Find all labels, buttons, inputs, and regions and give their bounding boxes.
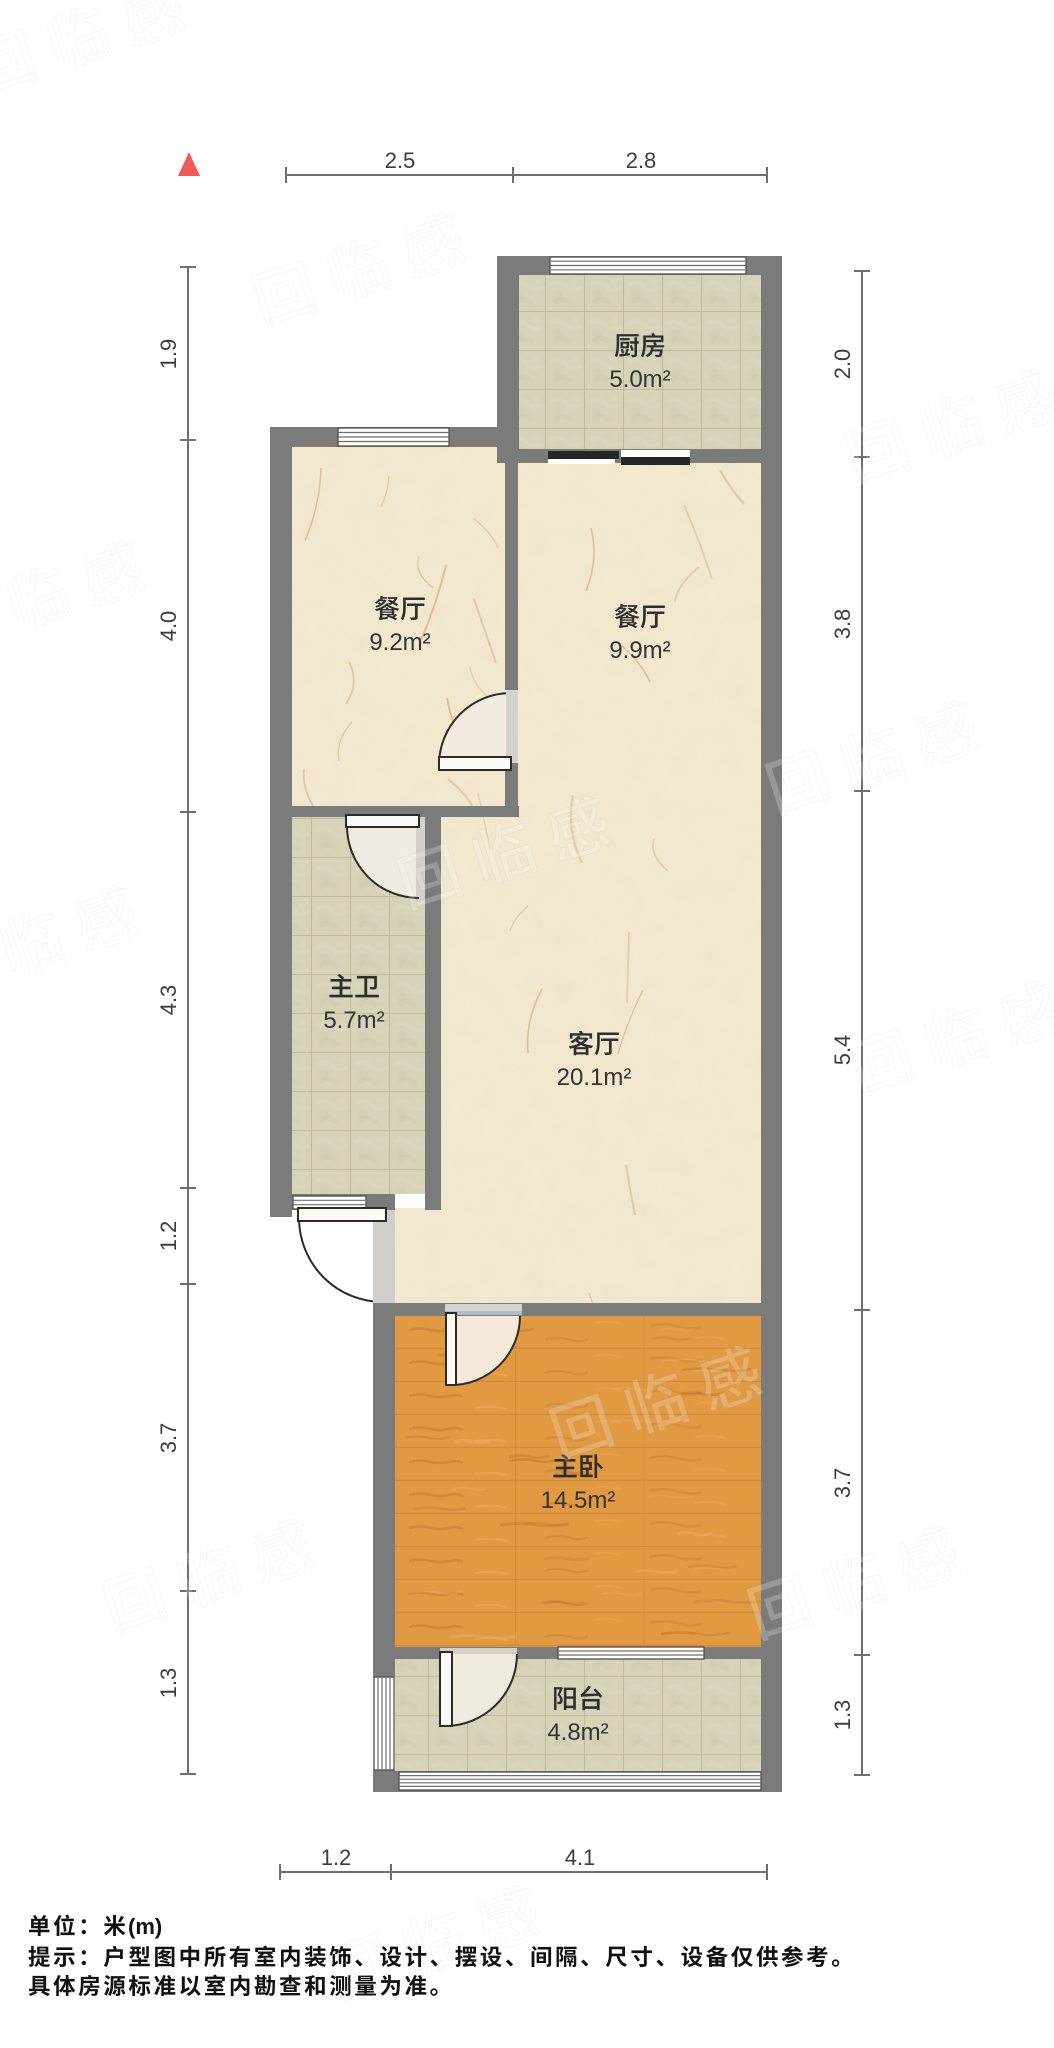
svg-text:5.0m²: 5.0m² — [609, 366, 670, 393]
svg-text:20.1m²: 20.1m² — [557, 1064, 632, 1091]
svg-text:4.8m²: 4.8m² — [547, 1719, 608, 1746]
svg-text:4.3: 4.3 — [156, 985, 181, 1016]
svg-text:5.7m²: 5.7m² — [323, 1007, 384, 1034]
svg-text:(m): (m) — [128, 1914, 162, 1939]
svg-text:3.7: 3.7 — [830, 1468, 855, 1499]
svg-text:4.0: 4.0 — [156, 611, 181, 642]
svg-text:9.9m²: 9.9m² — [609, 637, 670, 664]
svg-text:2.0: 2.0 — [830, 349, 855, 380]
svg-text:1.3: 1.3 — [156, 1668, 181, 1699]
svg-text:9.2m²: 9.2m² — [369, 629, 430, 656]
svg-text:3.7: 3.7 — [156, 1423, 181, 1454]
svg-text:1.2: 1.2 — [321, 1845, 352, 1870]
svg-text:2.5: 2.5 — [385, 148, 416, 173]
svg-text:1.9: 1.9 — [156, 339, 181, 370]
svg-text:2.8: 2.8 — [626, 148, 657, 173]
svg-text:14.5m²: 14.5m² — [541, 1487, 616, 1514]
svg-text:4.1: 4.1 — [565, 1845, 596, 1870]
svg-text:3.8: 3.8 — [830, 609, 855, 640]
svg-text:1.3: 1.3 — [830, 1700, 855, 1731]
svg-text:1.2: 1.2 — [156, 1221, 181, 1252]
